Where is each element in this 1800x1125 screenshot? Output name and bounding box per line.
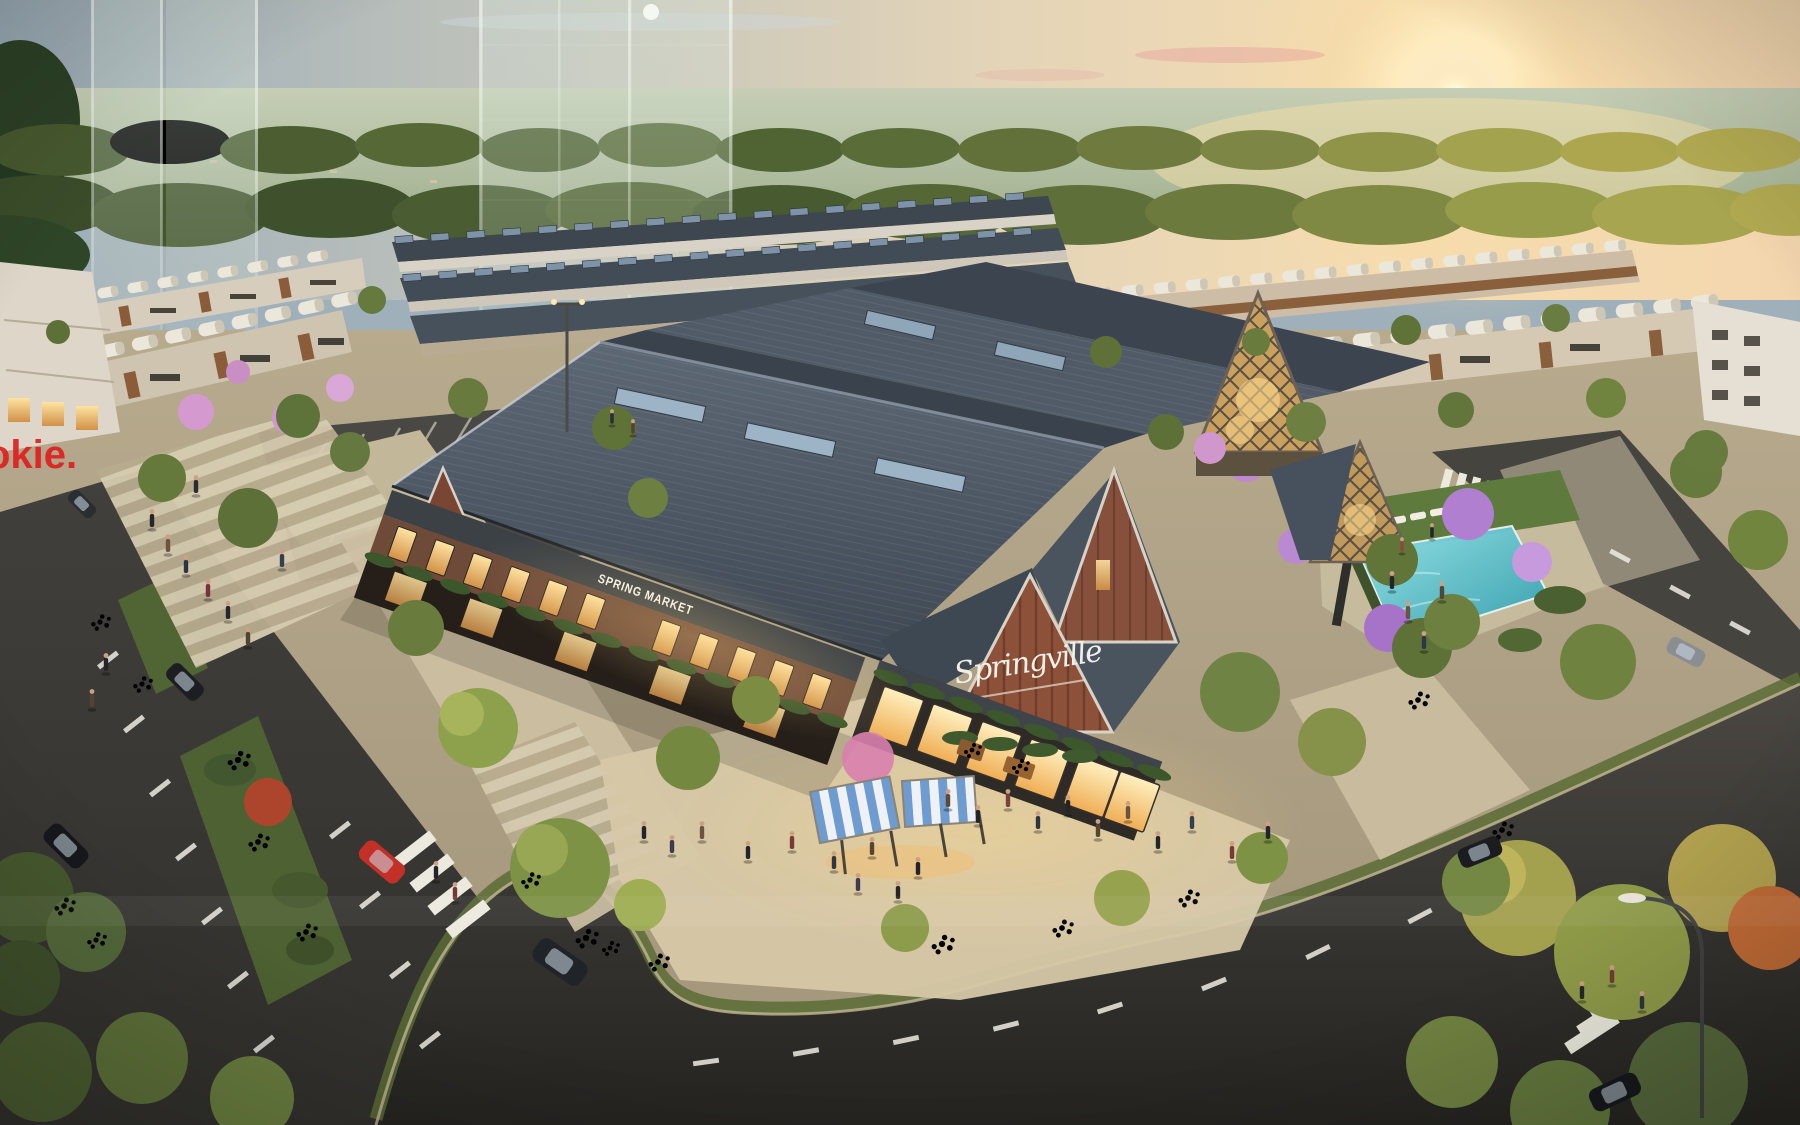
vignette (0, 0, 1800, 1125)
aerial-architectural-render: Springville SPRING MARKET (0, 0, 1800, 1125)
